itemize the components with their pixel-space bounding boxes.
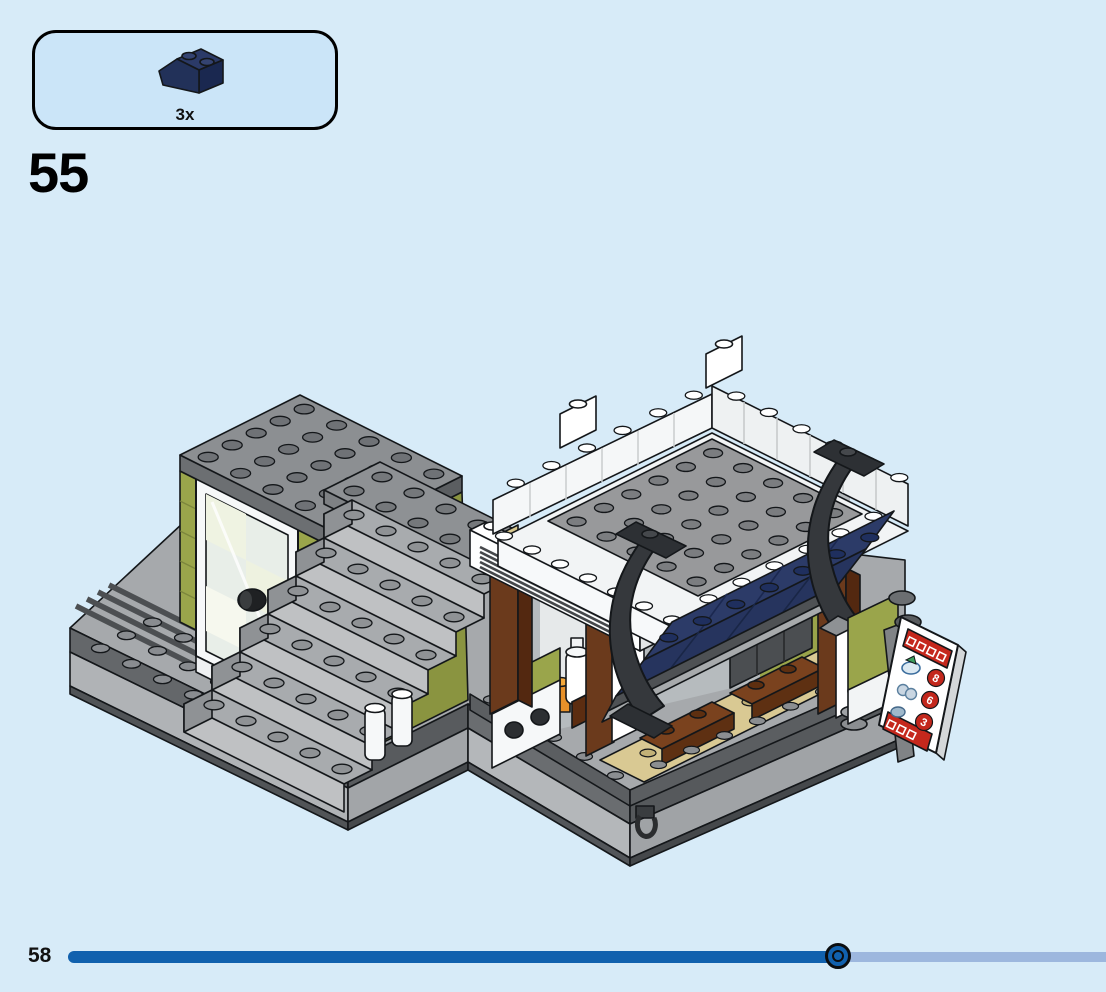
progress-marker[interactable] bbox=[825, 943, 851, 969]
progress-fill bbox=[68, 951, 838, 963]
step-model-illustration: 8 6 3 bbox=[0, 0, 1106, 992]
progress-bar[interactable] bbox=[68, 951, 1106, 963]
page-number: 58 bbox=[28, 944, 51, 968]
instruction-page: 3x 55 bbox=[0, 0, 1106, 992]
progress-marker-ring bbox=[832, 950, 844, 962]
menu-item-bowl-icon bbox=[902, 662, 920, 674]
menu-item-sushi-icon bbox=[891, 707, 905, 717]
